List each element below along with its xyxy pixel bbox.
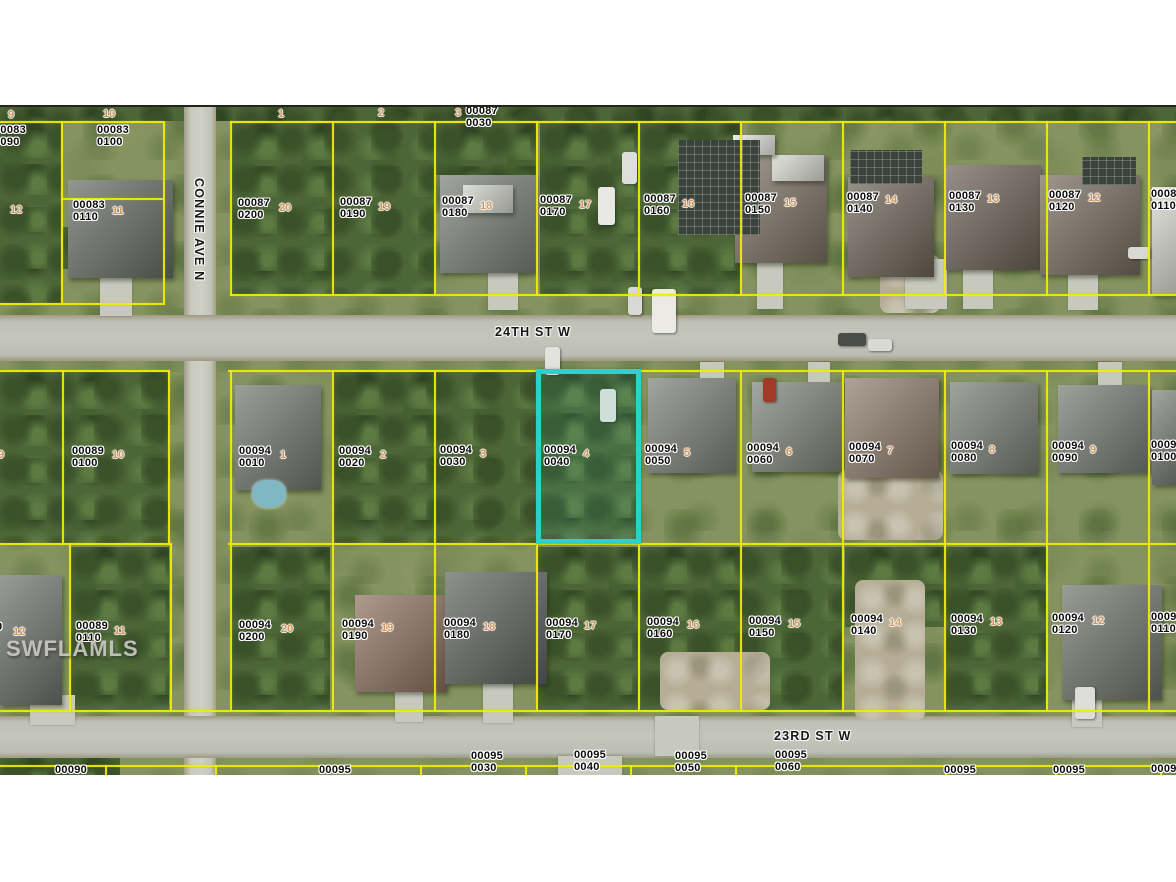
parcel-label: 00083 0090 bbox=[0, 125, 26, 148]
parcel-label: 00095 bbox=[319, 765, 351, 775]
vehicle bbox=[1128, 247, 1150, 259]
parcel-boundary-line bbox=[420, 765, 422, 775]
lot-number-marker: 12 bbox=[1092, 616, 1104, 627]
driveway bbox=[1068, 272, 1098, 310]
vehicle bbox=[868, 339, 892, 351]
parcel-boundary-line bbox=[228, 370, 1176, 372]
parcel-label: 00095 0030 bbox=[471, 751, 503, 774]
parcel-label: 00094 0030 bbox=[440, 445, 472, 468]
parcel-boundary-line bbox=[536, 543, 538, 712]
parcel-label: 00087 0180 bbox=[442, 196, 474, 219]
parcel-label: 00094 0090 bbox=[1052, 441, 1084, 464]
lot-number-marker: 2 bbox=[378, 108, 384, 119]
lot-number-marker: 20 bbox=[279, 203, 291, 214]
dirt-patch bbox=[855, 580, 925, 720]
lot-number-marker: 2 bbox=[380, 450, 386, 461]
lot-number-marker: 12 bbox=[10, 205, 22, 216]
parcel-label: 00094 0060 bbox=[747, 443, 779, 466]
lot-number-marker: 4 bbox=[583, 449, 589, 460]
parcel-label: 00087 0120 bbox=[1049, 190, 1081, 213]
street-label-24th-st-w: 24TH ST W bbox=[495, 325, 571, 339]
swimming-pool bbox=[252, 480, 286, 508]
vehicle bbox=[622, 152, 637, 184]
parcel-boundary-line bbox=[1148, 370, 1150, 545]
house-roof bbox=[1062, 585, 1162, 700]
lot-number-marker: 16 bbox=[687, 620, 699, 631]
lot-number-marker: 18 bbox=[483, 622, 495, 633]
parcel-boundary-line bbox=[230, 370, 232, 545]
parcel-boundary-line bbox=[230, 121, 232, 296]
parcel-boundary-line bbox=[0, 303, 163, 305]
lot-number-marker: 7 bbox=[887, 446, 893, 457]
house-roof bbox=[235, 385, 321, 490]
parcel-boundary-line bbox=[842, 543, 844, 712]
vehicle bbox=[763, 378, 776, 402]
parcel-label: 00087 0170 bbox=[540, 195, 572, 218]
house-roof bbox=[68, 180, 173, 278]
parcel-label: 00087 0160 bbox=[644, 194, 676, 217]
driveway bbox=[963, 269, 993, 309]
road-24th-st-w bbox=[0, 315, 1176, 361]
lot-number-marker: 14 bbox=[889, 618, 901, 629]
street-label-connie-ave-n: CONNIE AVE N bbox=[192, 178, 206, 281]
lot-number-marker: 10 bbox=[112, 450, 124, 461]
lot-number-marker: 19 bbox=[381, 623, 393, 634]
parcel-label: 00094 0140 bbox=[851, 614, 883, 637]
tree-area bbox=[436, 123, 536, 175]
parcel-boundary-line bbox=[230, 121, 1176, 123]
vehicle bbox=[838, 333, 866, 346]
parcel-boundary-line bbox=[62, 370, 64, 545]
parcel-label: 00089 0100 bbox=[72, 446, 104, 469]
vehicle bbox=[598, 187, 615, 225]
lot-number-marker: 3 bbox=[455, 108, 461, 119]
parcel-label: 00095 bbox=[944, 765, 976, 775]
parcel-label: 00087 0030 bbox=[466, 107, 498, 129]
driveway bbox=[757, 257, 783, 309]
driveway bbox=[395, 687, 423, 722]
parcel-boundary-line bbox=[332, 121, 334, 296]
lot-number-marker: 10 bbox=[103, 109, 115, 120]
parcel-label: 00083 0110 bbox=[73, 200, 105, 223]
parcel-label: 00094 0190 bbox=[342, 619, 374, 642]
parcel-boundary-line bbox=[630, 765, 632, 775]
parcel-boundary-line bbox=[1046, 370, 1048, 545]
house-roof bbox=[1152, 390, 1176, 485]
parcel-boundary-line bbox=[944, 543, 946, 712]
parcel-boundary-line bbox=[735, 765, 737, 775]
lot-number-marker: 3 bbox=[480, 449, 486, 460]
lot-number-marker: 13 bbox=[990, 617, 1002, 628]
parcel-label: 00094 0170 bbox=[546, 618, 578, 641]
lot-number-marker: 9 bbox=[0, 450, 4, 461]
parcel-boundary-line bbox=[332, 370, 334, 545]
parcel-label: 00087 0200 bbox=[238, 198, 270, 221]
aerial-photo: 00083 009000083 010000083 011000087 0030… bbox=[0, 107, 1176, 775]
parcel-boundary-line bbox=[332, 543, 334, 712]
parcel-boundary-line bbox=[0, 710, 1176, 712]
parcel-boundary-line bbox=[69, 543, 71, 712]
parcel-label: 00087 0190 bbox=[340, 197, 372, 220]
pool-screen-enclosure bbox=[850, 150, 922, 184]
parcel-boundary-line bbox=[434, 370, 436, 545]
parcel-label: 00094 0070 bbox=[849, 442, 881, 465]
parcel-label: 00094 0130 bbox=[951, 614, 983, 637]
parcel-label: 9 bbox=[0, 622, 2, 634]
parcel-boundary-line bbox=[740, 121, 742, 296]
parcel-label: 00094 0100 bbox=[1151, 440, 1176, 463]
parcel-label: 00087 0140 bbox=[847, 192, 879, 215]
parcel-boundary-line bbox=[842, 121, 844, 296]
parcel-boundary-line bbox=[168, 370, 170, 545]
parcel-label: 00087 0130 bbox=[949, 191, 981, 214]
lot-number-marker: 8 bbox=[989, 445, 995, 456]
parcel-label: 00095 0060 bbox=[775, 750, 807, 773]
parcel-label: 00094 0150 bbox=[749, 616, 781, 639]
parcel-boundary-line bbox=[740, 370, 742, 545]
lot-number-marker: 17 bbox=[579, 200, 591, 211]
lot-number-marker: 1 bbox=[278, 109, 284, 120]
parcel-label: 00094 0160 bbox=[647, 617, 679, 640]
vehicle bbox=[1075, 687, 1095, 719]
parcel-label: 00087 0110 bbox=[1151, 189, 1176, 212]
parcel-boundary-line bbox=[536, 121, 538, 296]
parcel-label: 00090 bbox=[55, 765, 87, 775]
parcel-boundary-line bbox=[525, 765, 527, 775]
lot-number-marker: 5 bbox=[684, 448, 690, 459]
parcel-boundary-line bbox=[740, 543, 742, 712]
parcel-boundary-line bbox=[170, 543, 172, 712]
parcel-label: 00095 0050 bbox=[675, 751, 707, 774]
parcel-boundary-line bbox=[230, 294, 1176, 296]
pool-screen-enclosure bbox=[678, 140, 760, 235]
parcel-label: 0009 bbox=[1151, 764, 1176, 775]
parcel-boundary-line bbox=[105, 765, 107, 775]
lot-number-marker: 19 bbox=[378, 202, 390, 213]
lot-number-marker: 9 bbox=[1090, 445, 1096, 456]
parcel-boundary-line bbox=[1148, 121, 1150, 296]
parcel-boundary-line bbox=[434, 543, 436, 712]
parcel-boundary-line bbox=[230, 543, 232, 712]
dirt-patch bbox=[660, 652, 770, 710]
tree-area bbox=[0, 107, 1176, 121]
street-label-23rd-st-w: 23RD ST W bbox=[774, 729, 851, 743]
lot-number-marker: 20 bbox=[281, 624, 293, 635]
lot-number-marker: 12 bbox=[1088, 193, 1100, 204]
parcel-label: 00087 0150 bbox=[745, 193, 777, 216]
parcel-boundary-line bbox=[638, 543, 640, 712]
lot-number-marker: 16 bbox=[682, 199, 694, 210]
lot-number-marker: 1 bbox=[280, 450, 286, 461]
parcel-label: 00094 0020 bbox=[339, 446, 371, 469]
parcel-boundary-line bbox=[638, 121, 640, 296]
lot-number-marker: 15 bbox=[788, 619, 800, 630]
parcel-boundary-line bbox=[1148, 543, 1150, 712]
parcel-label: 00094 0040 bbox=[544, 445, 576, 468]
lot-number-marker: 15 bbox=[784, 198, 796, 209]
lot-number-marker: 11 bbox=[112, 206, 124, 217]
lot-number-marker: 14 bbox=[885, 195, 897, 206]
driveway bbox=[100, 278, 132, 316]
parcel-label: 00094 0200 bbox=[239, 620, 271, 643]
house-roof bbox=[945, 165, 1041, 270]
house-roof bbox=[772, 155, 824, 181]
lot-number-marker: 13 bbox=[987, 194, 999, 205]
parcel-label: 00083 0100 bbox=[97, 125, 129, 148]
parcel-boundary-line bbox=[1046, 121, 1048, 296]
lot-number-marker: 18 bbox=[480, 201, 492, 212]
parcel-label: 00094 0110 bbox=[1151, 612, 1176, 635]
parcel-boundary-line bbox=[944, 121, 946, 296]
parcel-label: 00094 0010 bbox=[239, 446, 271, 469]
parcel-boundary-line bbox=[434, 121, 436, 296]
parcel-boundary-line bbox=[228, 543, 1176, 545]
parcel-boundary-line bbox=[0, 543, 170, 545]
parcel-label: 00094 0180 bbox=[444, 618, 476, 641]
driveway bbox=[483, 679, 513, 723]
dirt-patch bbox=[838, 470, 943, 540]
parcel-boundary-line bbox=[61, 121, 63, 305]
parcel-boundary-line bbox=[944, 370, 946, 545]
lot-number-marker: 17 bbox=[584, 621, 596, 632]
parcel-boundary-line bbox=[0, 370, 170, 372]
parcel-boundary-line bbox=[0, 121, 163, 123]
parcel-label: 00094 0050 bbox=[645, 444, 677, 467]
mls-aerial-parcel-map: 00083 009000083 010000083 011000087 0030… bbox=[0, 0, 1176, 882]
watermark: SWFLAMLS bbox=[6, 636, 139, 662]
parcel-label: 00094 0120 bbox=[1052, 613, 1084, 636]
parcel-boundary-line bbox=[842, 370, 844, 545]
lot-number-marker: 6 bbox=[786, 447, 792, 458]
parcel-boundary-line bbox=[215, 765, 217, 775]
lot-number-marker: 9 bbox=[8, 110, 14, 121]
parcel-label: 00095 bbox=[1053, 765, 1085, 775]
parcel-boundary-line bbox=[163, 121, 165, 305]
pool-screen-enclosure bbox=[1082, 157, 1136, 185]
parcel-label: 00094 0080 bbox=[951, 441, 983, 464]
parcel-boundary-line bbox=[1046, 543, 1048, 712]
parcel-label: 00095 0040 bbox=[574, 750, 606, 773]
